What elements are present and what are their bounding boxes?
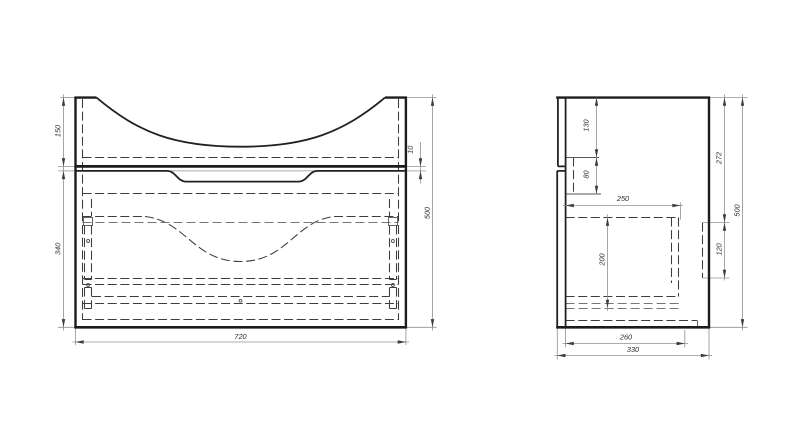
- svg-text:10: 10: [406, 146, 415, 154]
- svg-text:150: 150: [53, 125, 62, 137]
- svg-text:500: 500: [423, 207, 432, 219]
- svg-text:200: 200: [597, 253, 606, 266]
- svg-text:130: 130: [582, 119, 591, 131]
- svg-text:500: 500: [733, 204, 742, 216]
- svg-text:250: 250: [616, 194, 629, 203]
- svg-text:120: 120: [715, 243, 724, 255]
- svg-text:340: 340: [53, 243, 62, 255]
- svg-text:272: 272: [714, 152, 723, 165]
- svg-text:330: 330: [627, 345, 639, 354]
- svg-text:80: 80: [582, 170, 591, 178]
- svg-text:720: 720: [234, 332, 246, 341]
- svg-text:260: 260: [619, 333, 632, 342]
